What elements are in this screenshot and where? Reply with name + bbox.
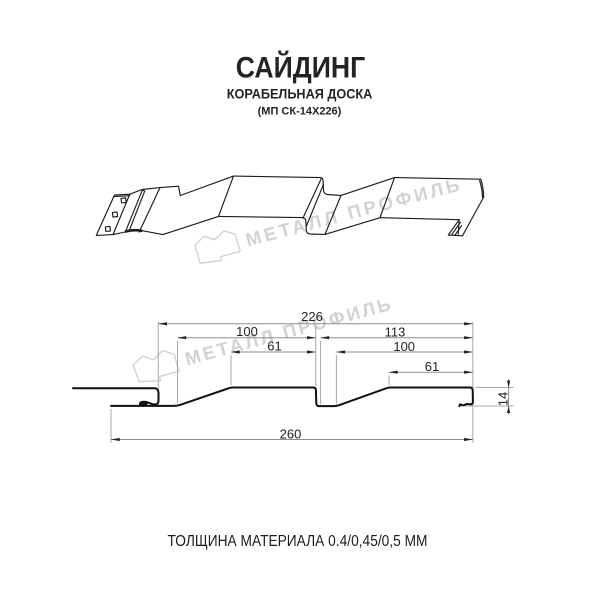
svg-text:226: 226 — [301, 309, 323, 324]
svg-text:КОРАБЕЛЬНАЯ ДОСКА: КОРАБЕЛЬНАЯ ДОСКА — [227, 87, 372, 103]
svg-text:113: 113 — [385, 324, 406, 339]
svg-text:(МП СК-14Х226): (МП СК-14Х226) — [258, 106, 342, 118]
svg-text:260: 260 — [280, 427, 302, 442]
svg-text:61: 61 — [267, 338, 281, 353]
svg-text:ТОЛЩИНА МАТЕРИАЛА 0.4/0,45/0,5: ТОЛЩИНА МАТЕРИАЛА 0.4/0,45/0,5 ММ — [168, 533, 428, 550]
svg-text:100: 100 — [393, 339, 415, 354]
svg-text:САЙДИНГ: САЙДИНГ — [236, 50, 366, 84]
svg-text:61: 61 — [425, 359, 439, 374]
svg-text:14: 14 — [495, 392, 510, 406]
svg-text:100: 100 — [236, 324, 258, 339]
